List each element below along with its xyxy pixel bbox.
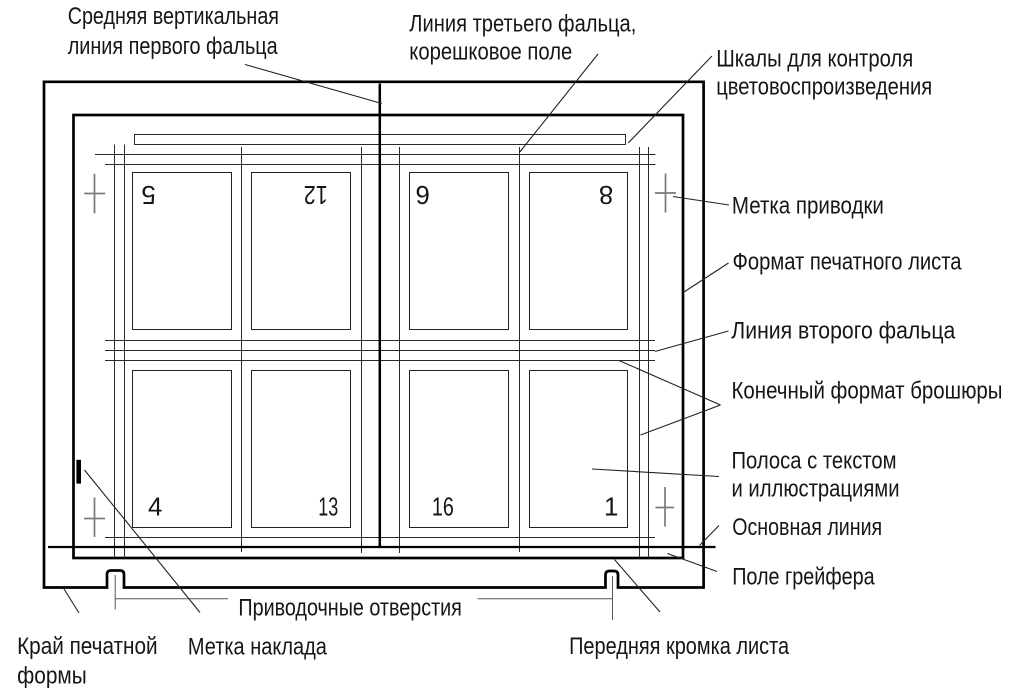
svg-text:Линия третьего фальца,: Линия третьего фальца, — [409, 10, 636, 37]
svg-text:Метка приводки: Метка приводки — [732, 192, 884, 219]
svg-text:16: 16 — [432, 493, 454, 521]
svg-text:Полоса с текстом: Полоса с текстом — [732, 447, 897, 474]
svg-text:Шкалы для контроля: Шкалы для контроля — [716, 46, 913, 73]
svg-text:корешковое поле: корешковое поле — [409, 38, 572, 65]
svg-text:Линия второго фальца: Линия второго фальца — [731, 318, 956, 345]
svg-text:и иллюстрациями: и иллюстрациями — [732, 475, 900, 502]
svg-text:Средняя вертикальная: Средняя вертикальная — [68, 3, 279, 30]
svg-text:4: 4 — [148, 493, 162, 521]
svg-text:1: 1 — [604, 493, 618, 521]
svg-text:формы: формы — [17, 663, 87, 688]
svg-text:Приводочные отверстия: Приводочные отверстия — [238, 595, 462, 622]
svg-text:цветовоспроизведения: цветовоспроизведения — [716, 73, 932, 100]
svg-text:5: 5 — [141, 180, 155, 208]
svg-text:12: 12 — [304, 180, 328, 208]
svg-text:Основная линия: Основная линия — [732, 514, 882, 541]
svg-text:13: 13 — [318, 493, 338, 521]
svg-text:6: 6 — [416, 180, 430, 208]
svg-text:Передняя кромка листа: Передняя кромка листа — [569, 633, 790, 660]
svg-text:Поле грейфера: Поле грейфера — [732, 563, 875, 590]
svg-text:8: 8 — [599, 180, 613, 208]
svg-text:Метка наклада: Метка наклада — [188, 634, 328, 661]
svg-text:линия первого фальца: линия первого фальца — [68, 33, 279, 60]
svg-text:Край печатной: Край печатной — [17, 633, 158, 660]
svg-text:Формат печатного листа: Формат печатного листа — [733, 248, 963, 275]
svg-text:Конечный формат брошюры: Конечный формат брошюры — [732, 377, 1003, 404]
